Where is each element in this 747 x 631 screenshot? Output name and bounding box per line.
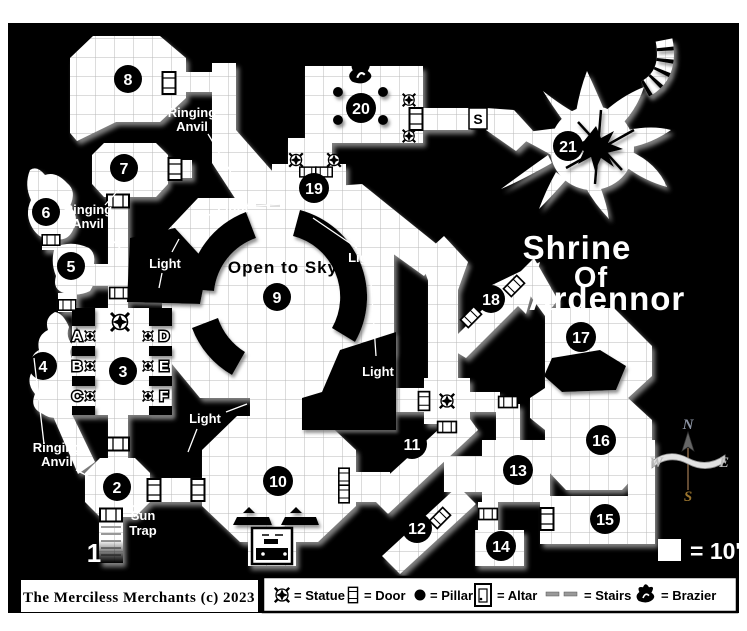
room-marker-10: 10	[263, 466, 293, 496]
corridor-20-east	[423, 108, 471, 130]
room-marker-2: 2	[103, 473, 131, 501]
bench	[233, 517, 272, 525]
scale-square	[658, 539, 681, 561]
legend-altar-label: = Altar	[497, 588, 537, 603]
room-marker-8: 8	[114, 65, 142, 93]
door-icon	[107, 438, 129, 451]
legend-statue-label: = Statue	[294, 588, 345, 603]
svg-text:21: 21	[559, 139, 577, 156]
room-marker-3: 3	[109, 357, 137, 385]
alcove-letter: A	[72, 328, 83, 345]
stairs-marker: S	[469, 108, 487, 129]
label-light: Light	[348, 250, 380, 265]
room-marker-15: 15	[590, 504, 620, 534]
room-marker-5: 5	[57, 252, 85, 280]
statue-icon	[403, 94, 416, 107]
alcove-letter: C	[72, 388, 83, 405]
door-icon	[499, 396, 518, 407]
svg-text:Anvil: Anvil	[176, 119, 208, 134]
room-marker-1: 1	[87, 538, 101, 568]
room-marker-14: 14	[486, 531, 516, 561]
svg-text:16: 16	[592, 433, 610, 450]
door-icon	[42, 235, 60, 245]
scale-indicator: = 10'	[658, 538, 741, 564]
statue-icon	[85, 391, 96, 402]
svg-text:11: 11	[404, 437, 421, 454]
door-icon	[348, 587, 357, 602]
compass-north: N	[682, 417, 695, 433]
compass-south: S	[684, 489, 692, 505]
label-ringing-anvil: Ringing	[64, 202, 112, 217]
statue-icon	[289, 153, 303, 167]
room-marker-16: 16	[586, 425, 616, 455]
room-marker-4: 4	[29, 352, 57, 380]
bench	[281, 517, 319, 525]
door-icon	[479, 508, 498, 519]
svg-text:17: 17	[572, 330, 590, 347]
legend-brazier-label: = Brazier	[661, 588, 716, 603]
statue-icon	[111, 313, 129, 331]
svg-text:10: 10	[269, 474, 287, 491]
label-open-to-sky: Open to Sky	[228, 258, 338, 277]
alcove-letter: D	[159, 328, 170, 345]
door-icon	[418, 392, 429, 411]
room-marker-19: 19	[299, 173, 329, 203]
svg-text:2: 2	[113, 480, 122, 497]
stairs-marker-letter: S	[473, 111, 482, 127]
svg-text:9: 9	[273, 290, 282, 307]
title-line: Shrine	[523, 229, 632, 266]
altar-icon	[475, 584, 491, 606]
label-ringing-anvil: Ringing	[168, 105, 216, 120]
svg-text:Anvil: Anvil	[72, 216, 104, 231]
door-icon	[58, 300, 76, 310]
label-light: Light	[217, 200, 249, 215]
pillar-icon	[333, 87, 343, 97]
label-light: Light	[189, 411, 221, 426]
junction-east-corridor	[470, 392, 500, 412]
footer-copyright: The Merciless Merchants (c) 2023	[23, 590, 255, 606]
svg-text:20: 20	[352, 101, 370, 118]
svg-text:19: 19	[305, 181, 323, 198]
scale-label: = 10'	[690, 538, 741, 564]
corridor-8	[176, 72, 212, 92]
door-icon	[541, 508, 554, 530]
label-ringing-anvil: Ringing	[33, 440, 81, 455]
room-marker-21: 21	[553, 131, 583, 161]
pillar-icon	[378, 87, 388, 97]
svg-text:14: 14	[492, 539, 510, 556]
compass-west: W	[649, 455, 664, 471]
svg-text:15: 15	[596, 512, 614, 529]
svg-text:5: 5	[67, 259, 76, 276]
pillar-icon	[333, 115, 343, 125]
svg-text:8: 8	[124, 72, 133, 89]
alcove-letter: E	[159, 358, 169, 375]
statue-icon	[275, 588, 289, 602]
svg-text:7: 7	[120, 161, 129, 178]
svg-text:18: 18	[482, 292, 500, 309]
dungeon-map: S 1 2 3 4 5 6 7 8 9 10 11 12 13 14 15 16…	[0, 0, 747, 631]
alcove-letter: F	[159, 388, 168, 405]
room-marker-12: 12	[402, 513, 432, 543]
statue-icon	[143, 331, 154, 342]
entrance-fade	[99, 540, 123, 563]
statue-icon	[85, 331, 96, 342]
label-light: Light	[149, 256, 181, 271]
alcove-letter: B	[72, 358, 83, 375]
door-icon	[169, 158, 182, 180]
legend-bar: = Statue = Door = Pillar = Altar = Stair…	[263, 577, 737, 612]
altar-icon	[252, 528, 292, 564]
door-icon	[163, 72, 176, 94]
svg-text:Trap: Trap	[129, 523, 157, 538]
statue-icon	[85, 361, 96, 372]
statue-icon	[327, 153, 341, 167]
room-marker-6: 6	[32, 198, 60, 226]
statue-icon	[143, 361, 154, 372]
svg-text:3: 3	[119, 364, 128, 381]
legend-door-label: = Door	[364, 588, 406, 603]
room-13-west-arm	[444, 456, 484, 492]
title-line: Ardennor	[529, 280, 686, 317]
footer-bar: The Merciless Merchants (c) 2023	[21, 580, 258, 612]
legend-pillar-label: = Pillar	[430, 588, 473, 603]
door-icon	[100, 509, 122, 522]
door-icon	[110, 287, 129, 298]
door-icon	[148, 479, 161, 501]
legend-stairs-label: = Stairs	[584, 588, 631, 603]
room-marker-20: 20	[346, 93, 376, 123]
svg-text:12: 12	[408, 521, 426, 538]
svg-text:4: 4	[39, 359, 48, 376]
corridor-y-south	[428, 280, 458, 386]
statue-icon	[440, 394, 454, 408]
statue-icon	[143, 391, 154, 402]
pillar-icon	[378, 115, 388, 125]
room-marker-17: 17	[566, 322, 596, 352]
door-icon	[192, 479, 205, 501]
label-light: Light	[362, 364, 394, 379]
room-marker-11: 11	[397, 429, 427, 459]
door-icon	[339, 468, 349, 486]
room-marker-9: 9	[263, 283, 291, 311]
pillar-icon	[415, 590, 426, 601]
room-marker-7: 7	[110, 154, 138, 182]
door-icon	[438, 421, 457, 432]
room-marker-18: 18	[477, 285, 505, 313]
room-marker-13: 13	[503, 455, 533, 485]
compass-east: E	[718, 455, 729, 471]
statue-icon	[403, 130, 416, 143]
svg-text:6: 6	[42, 205, 51, 222]
door-icon	[410, 108, 423, 130]
label-sun-trap: Sun	[131, 508, 156, 523]
door-icon	[339, 485, 349, 503]
svg-text:Anvil: Anvil	[41, 454, 73, 469]
svg-text:13: 13	[509, 463, 527, 480]
